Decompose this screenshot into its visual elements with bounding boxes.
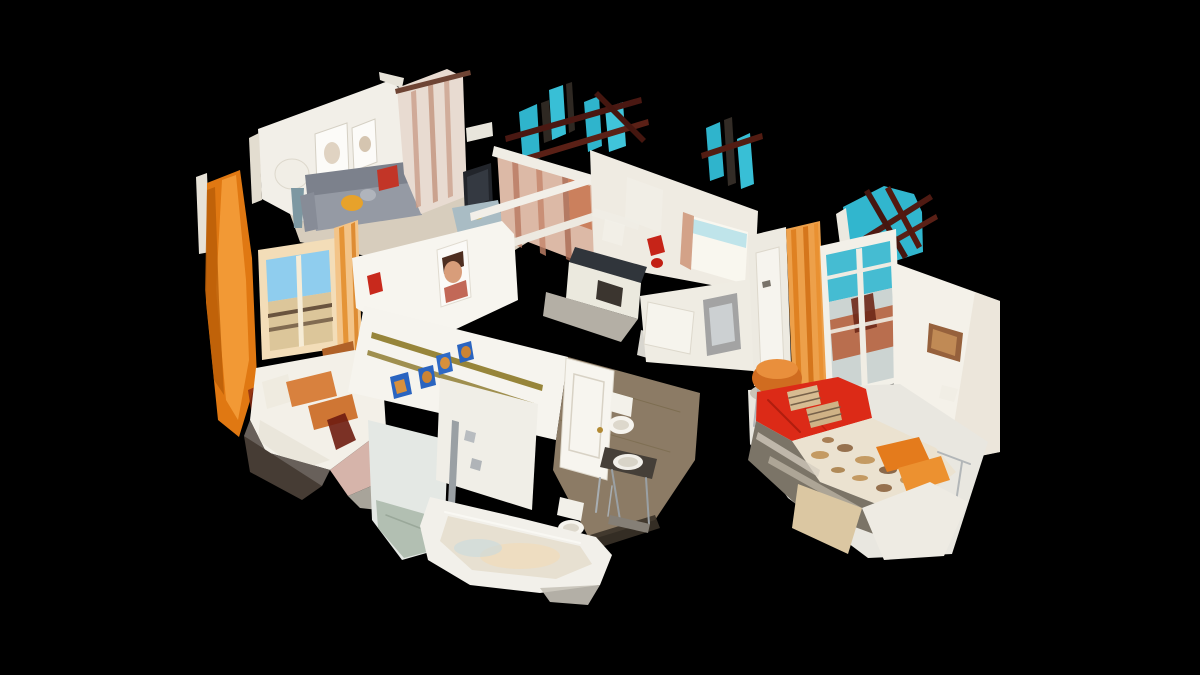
floor-lamp-shade: [275, 159, 309, 189]
duvet-pattern-blob: [811, 451, 829, 459]
red-kettle: [651, 258, 663, 268]
orange-pouf-top: [756, 359, 798, 379]
poster-portrait-face: [444, 261, 462, 283]
window-post: [566, 82, 575, 133]
floor-fragment-gray: [540, 585, 600, 605]
bathtub-glow-blue: [454, 539, 502, 557]
ornate-mirror-glass: [709, 303, 735, 346]
duvet-pattern-blob: [855, 456, 875, 464]
bedroom-right-door: [756, 247, 784, 374]
sink-basin-inner: [618, 457, 638, 467]
picture-art: [324, 142, 340, 164]
wall-card-art: [461, 346, 471, 358]
duvet-pattern-blob: [837, 444, 853, 452]
toilet-seat-inner: [613, 420, 629, 430]
duvet-pattern-blob: [822, 437, 834, 443]
ac-unit: [466, 122, 493, 142]
picture-art: [359, 136, 371, 152]
wall-card-art: [440, 357, 450, 369]
wall-card-art: [422, 371, 432, 383]
duvet-pattern-blob: [831, 467, 845, 473]
duvet-pattern-blob: [852, 475, 868, 481]
duvet-pattern-blob: [876, 484, 892, 492]
window-post: [724, 117, 736, 186]
dollhouse-viewer-canvas[interactable]: [0, 0, 1200, 675]
door-knob: [597, 427, 603, 433]
screenshot-stage: [0, 0, 1200, 675]
sofa-pillow-gray: [360, 189, 376, 201]
sofa-pillow-orange: [341, 195, 363, 211]
sky-strip: [549, 85, 566, 140]
dollhouse-3d-view: [0, 0, 1200, 675]
